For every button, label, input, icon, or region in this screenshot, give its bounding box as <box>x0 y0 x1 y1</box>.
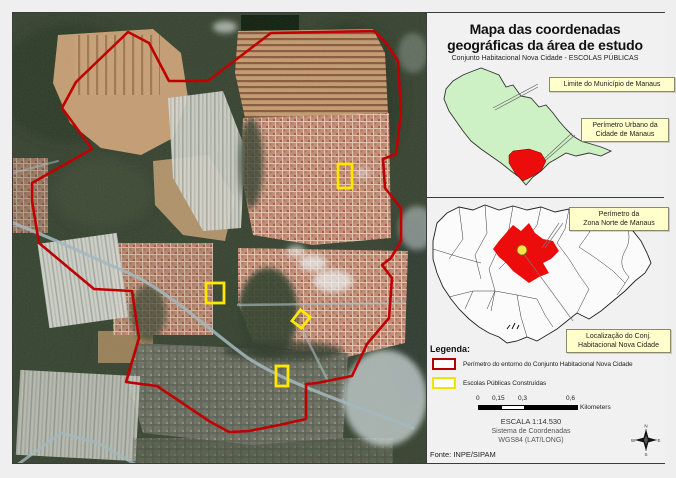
legend-heading: Legenda: <box>430 344 470 354</box>
label-localizacao-line1: Localização do Conj. <box>570 332 667 341</box>
page-title-line2: geográficas da área de estudo <box>426 37 664 53</box>
panel-divider <box>426 197 664 198</box>
satellite-imagery <box>13 13 426 463</box>
legend-item-schools-label: Escolas Públicas Construídas <box>463 380 546 387</box>
scale-tick-015: 0,15 <box>492 395 505 402</box>
page-subtitle: Conjunto Habitacional Nova Cidade - ESCO… <box>426 55 664 62</box>
legend-item-perimeter: Perímetro do entorno do Conjunto Habitac… <box>432 358 633 370</box>
map-document: Mapa das coordenadas geográficas da área… <box>12 12 665 464</box>
coordinate-system-line2: WGS84 (LAT/LONG) <box>431 437 631 444</box>
conjunto-location-dot <box>517 245 527 255</box>
label-zona-norte-line1: Perímetro da <box>573 210 665 219</box>
compass-s: S <box>644 452 647 457</box>
legend-item-perimeter-label: Perímetro do entorno do Conjunto Habitac… <box>463 361 633 368</box>
compass-rose-icon: N S E W <box>631 423 661 457</box>
scale-tick-06: 0,6 <box>566 395 575 402</box>
legend-item-schools: Escolas Públicas Construídas <box>432 377 546 389</box>
label-localizacao-conjunto: Localização do Conj. Habitacional Nova C… <box>566 329 671 353</box>
label-perimetro-urbano-line2: Cidade de Manaus <box>585 130 665 139</box>
scale-tick-0: 0 <box>476 395 480 402</box>
scale-text: ESCALA 1:14.530 <box>431 417 631 426</box>
scale-unit: Kilometers <box>580 404 611 411</box>
compass-e: E <box>657 438 660 443</box>
compass-n: N <box>644 424 647 429</box>
schools-swatch <box>432 377 456 389</box>
source-note: Fonte: INPE/SIPAM <box>430 450 496 459</box>
label-perimetro-urbano: Perímetro Urbano da Cidade de Manaus <box>581 118 669 142</box>
coordinate-system-line1: Sistema de Coordenadas <box>431 428 631 435</box>
label-perimetro-urbano-line1: Perímetro Urbano da <box>585 121 665 130</box>
label-zona-norte: Perímetro da Zona Norte de Manaus <box>569 207 669 231</box>
page-title-line1: Mapa das coordenadas <box>426 21 664 37</box>
satellite-map <box>13 13 426 463</box>
scale-bar-segments <box>478 405 578 410</box>
urban-perimeter-shape <box>509 149 546 181</box>
label-zona-norte-line2: Zona Norte de Manaus <box>573 219 665 228</box>
label-localizacao-line2: Habitacional Nova Cidade <box>570 341 667 350</box>
perimeter-swatch <box>432 358 456 370</box>
scale-tick-03: 0,3 <box>518 395 527 402</box>
label-limite-municipio: Limite do Município de Manaus <box>549 77 675 92</box>
